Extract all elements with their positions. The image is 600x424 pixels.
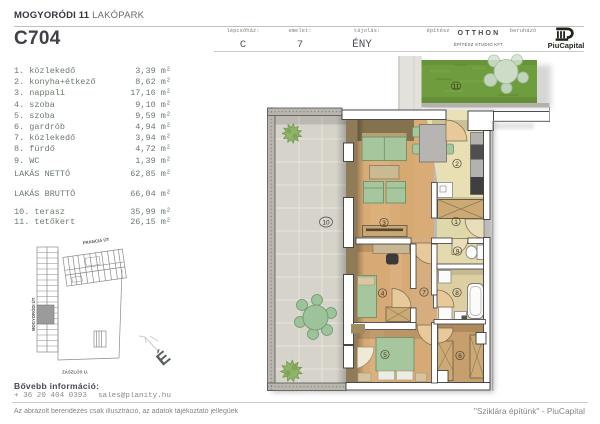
svg-text:4: 4 (381, 291, 385, 298)
svg-text:1: 1 (454, 219, 458, 226)
svg-text:3: 3 (382, 220, 386, 227)
svg-text:FRANCIA ÚT: FRANCIA ÚT (82, 237, 109, 246)
svg-text:6: 6 (458, 353, 462, 360)
svg-text:MOGYORÓDI ÚT: MOGYORÓDI ÚT (31, 297, 36, 331)
svg-text:11: 11 (453, 83, 460, 90)
svg-text:ZÁSZLÓS U.: ZÁSZLÓS U. (62, 370, 88, 375)
svg-text:7: 7 (422, 290, 426, 297)
svg-text:2: 2 (455, 161, 459, 168)
svg-text:9: 9 (456, 249, 460, 256)
svg-text:É: É (152, 346, 174, 370)
svg-text:5: 5 (383, 352, 387, 359)
svg-text:10: 10 (322, 220, 330, 227)
svg-text:8: 8 (455, 290, 459, 297)
